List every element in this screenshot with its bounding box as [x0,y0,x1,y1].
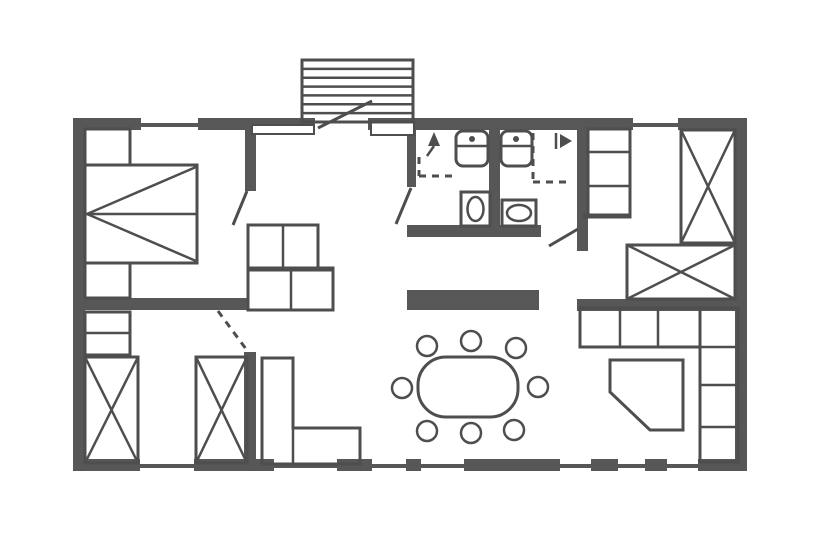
kitchen-counter-bar [407,290,539,310]
bottomleft-door-leaf-dashed [218,311,246,349]
dining-chair-4 [392,378,412,398]
dining-chair-5 [528,377,548,397]
bedroom1-divider-wall [85,298,248,310]
entry-arrow-up-stem [427,146,434,156]
corner-table [610,360,683,430]
dining-chair-6 [417,421,437,441]
shelfroom-door-leaf [549,229,578,246]
nightstand-bottom [85,263,130,298]
dining-chair-1 [417,336,437,356]
l-bench [262,358,360,464]
toilet-2-bowl [507,205,531,221]
dining-chair-2 [461,331,481,351]
dining-chair-8 [504,420,524,440]
entry-window-left [252,125,314,134]
dining-chair-7 [461,423,481,443]
bottom-pier-4 [406,459,421,471]
bottom-pier-5 [464,459,560,471]
dining-chair-3 [506,338,526,358]
toilet-1-bowl [468,197,484,221]
entry-window-right [371,122,414,135]
nightstand-top [85,129,130,165]
dining-table [418,357,518,417]
bath-left-wall [407,129,416,187]
bottom-pier-1 [73,459,140,471]
bedroom1-right-wall [245,129,256,191]
bedroom1-door-leaf [233,191,247,225]
sink-2-faucet-dot [513,136,519,142]
top-window-thin-left [141,123,198,127]
bottom-pier-6 [591,459,618,471]
shelfroom-wall [577,129,588,251]
bottom-pier-7 [645,459,667,471]
sofa-top [580,308,700,347]
sink-1-faucet-dot [469,136,475,142]
entry-arrow-up-icon [428,132,440,146]
entry-arrow-right-icon [560,134,572,148]
bath1-door-leaf [396,188,411,224]
floor-plan-svg [0,0,830,555]
bed-fold-upper [87,167,196,214]
shelf-unit [588,129,630,217]
bed-fold-lower [87,214,196,261]
floor-plan-canvas [0,0,830,555]
left-wall [73,118,85,470]
top-window-thin-right [632,123,678,127]
